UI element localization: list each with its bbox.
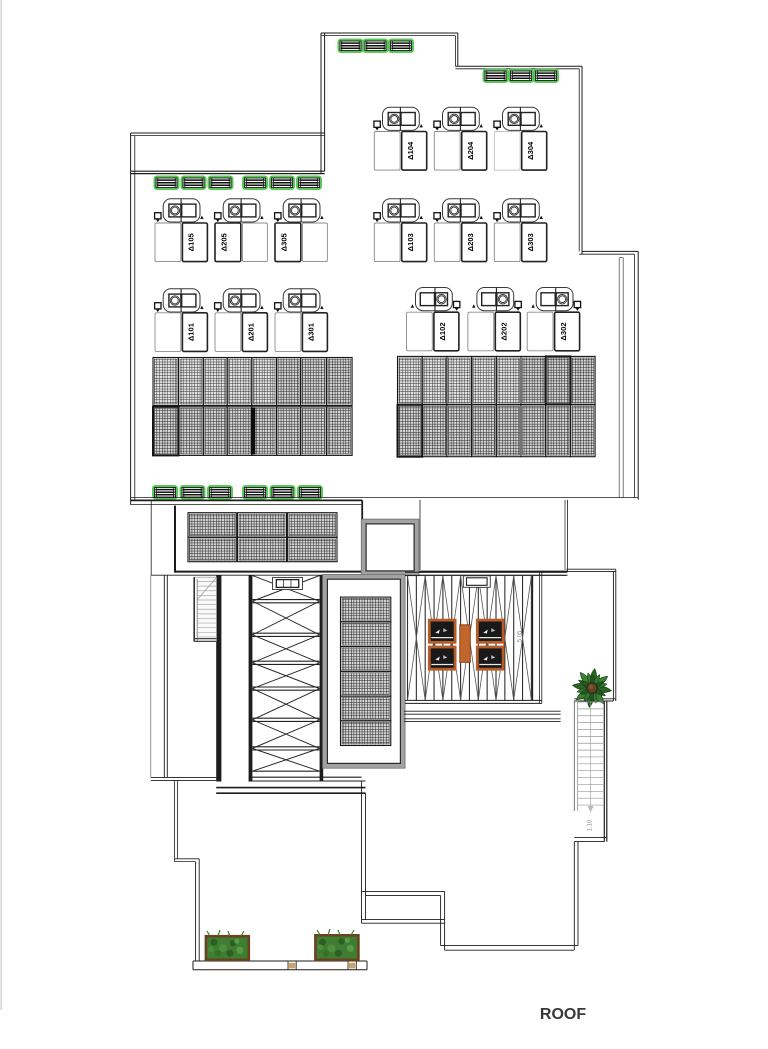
svg-text:Δ205: Δ205 — [220, 232, 229, 251]
svg-text:Δ105: Δ105 — [187, 232, 196, 251]
svg-text:ROOF: ROOF — [540, 1006, 586, 1023]
svg-text:Δ203: Δ203 — [466, 233, 475, 251]
svg-text:5.05: 5.05 — [518, 630, 524, 642]
svg-text:Δ201: Δ201 — [247, 322, 256, 341]
svg-text:Δ204: Δ204 — [466, 141, 475, 160]
svg-text:Δ303: Δ303 — [526, 233, 535, 251]
svg-text:Δ101: Δ101 — [187, 322, 196, 341]
svg-text:Δ304: Δ304 — [526, 141, 535, 160]
svg-text:Δ104: Δ104 — [406, 141, 415, 160]
svg-text:Δ102: Δ102 — [438, 322, 447, 340]
svg-text:Δ301: Δ301 — [307, 322, 316, 341]
svg-text:Δ103: Δ103 — [406, 233, 415, 251]
svg-text:Δ202: Δ202 — [500, 322, 509, 340]
svg-text:Δ305: Δ305 — [280, 232, 289, 251]
svg-text:Δ302: Δ302 — [559, 322, 568, 340]
svg-text:1.10: 1.10 — [588, 819, 594, 831]
